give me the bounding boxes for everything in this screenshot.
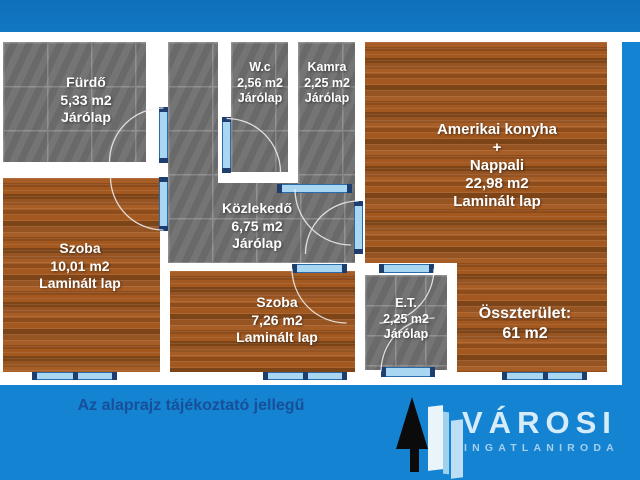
window-mullion [543,372,548,380]
room-floor: Járólap [16,109,156,127]
entrance-door [381,367,435,377]
room-name: Amerikai konyha [377,121,617,139]
room-area: 7,26 m2 [187,312,367,330]
plus-sign: + [377,139,617,157]
label-kamra: Kamra 2,25 m2 Járólap [294,60,360,107]
floor-plan-page: Fürdő 5,33 m2 Járólap W.c 2,56 m2 Járóla… [0,0,640,480]
room-area: 6,75 m2 [172,218,342,236]
building-side-icon [443,412,449,475]
door-furdo [159,107,168,163]
label-kozlekedo: Közlekedő 6,75 m2 Járólap [172,200,342,253]
room-floor: Laminált lap [10,275,150,293]
window-szoba1 [32,372,117,380]
label-nappali: Amerikai konyha + Nappali 22,98 m2 Lamin… [377,121,617,211]
room-area: 10,01 m2 [10,258,150,276]
room-name-2: Nappali [377,157,617,175]
door-kamra [277,184,352,193]
room-name: W.c [225,60,295,76]
window-nappali [502,372,587,380]
room-name: Fürdő [16,74,156,92]
room-floor: Járólap [294,91,360,107]
room-area: 5,33 m2 [16,92,156,110]
room-area: 2,56 m2 [225,76,295,92]
door-szoba2 [292,264,347,273]
window-mullion [73,372,78,380]
room-area: 22,98 m2 [377,175,617,193]
label-szoba2: Szoba 7,26 m2 Laminált lap [187,294,367,347]
tree-logo-icon [396,397,428,449]
window-szoba2 [263,372,347,380]
disclaimer-text: Az alaprajz tájékoztató jellegű [16,397,366,415]
door-szoba1 [159,177,168,231]
total-area-label: Összterület: 61 m2 [425,304,625,344]
window-mullion [303,372,308,380]
room-name: Szoba [187,294,367,312]
label-wc: W.c 2,56 m2 Járólap [225,60,295,107]
room-name: Kamra [294,60,360,76]
door-wc [222,117,231,173]
door-nappali [354,201,363,254]
label-szoba1: Szoba 10,01 m2 Laminált lap [10,240,150,293]
total-value: 61 m2 [425,324,625,344]
building-logo-icon [428,405,443,471]
room-floor: Laminált lap [377,193,617,211]
room-name: Közlekedő [172,200,342,218]
tree-trunk-icon [410,445,419,472]
total-label: Összterület: [425,304,625,324]
room-area: 2,25 m2 [294,76,360,92]
brand-name: VÁROSI [462,405,617,441]
room-floor: Járólap [225,91,295,107]
label-furdo: Fürdő 5,33 m2 Járólap [16,74,156,127]
brand-subtitle: INGATLANIRODA [464,442,619,454]
door-eloter [379,264,434,273]
room-name: Szoba [10,240,150,258]
room-floor: Laminált lap [187,329,367,347]
room-floor: Járólap [172,235,342,253]
